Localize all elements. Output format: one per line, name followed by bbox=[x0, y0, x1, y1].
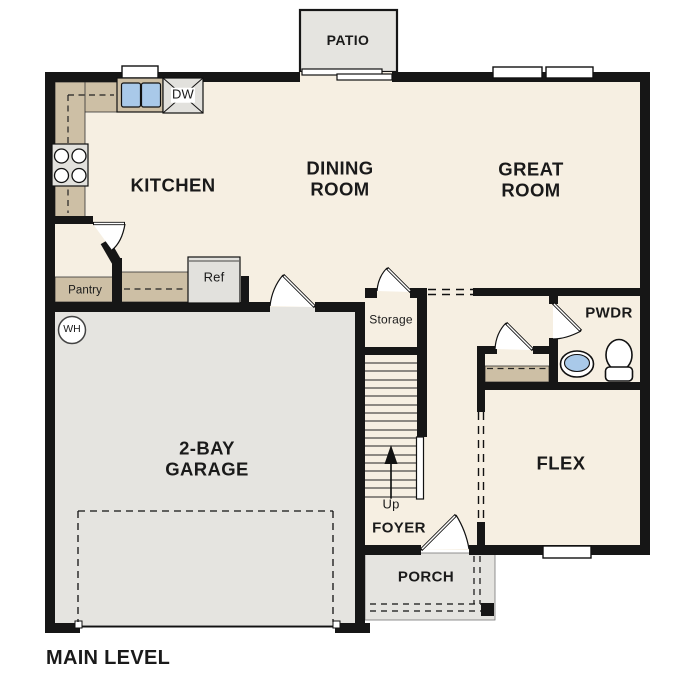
great-room-label: GREAT ROOM bbox=[498, 159, 563, 200]
dining-room-label: DINING ROOM bbox=[306, 158, 373, 199]
kitchen-window bbox=[122, 66, 158, 78]
kitchen-label: KITCHEN bbox=[130, 176, 215, 197]
porch-post bbox=[481, 603, 494, 616]
powder-sink bbox=[561, 351, 594, 377]
refrigerator-label: Ref bbox=[203, 271, 226, 286]
great-room-window-2 bbox=[546, 67, 593, 78]
garage-label: 2-BAY GARAGE bbox=[165, 438, 249, 479]
patio-label: PATIO bbox=[327, 33, 370, 49]
pantry-label: Pantry bbox=[68, 285, 102, 298]
porch-slab bbox=[365, 553, 495, 620]
flex-label: FLEX bbox=[537, 454, 586, 475]
toilet bbox=[606, 340, 633, 382]
storage-label: Storage bbox=[369, 313, 412, 326]
water-heater-label: WH bbox=[63, 324, 81, 336]
up-label: Up bbox=[382, 498, 399, 513]
dishwasher-label: DW bbox=[171, 88, 195, 103]
patio-sliding-door bbox=[300, 69, 392, 82]
powder-label: PWDR bbox=[585, 306, 632, 323]
mudroom-counter bbox=[120, 272, 188, 302]
closet-shelf bbox=[485, 366, 549, 382]
range-stove bbox=[52, 144, 88, 186]
flex-window bbox=[543, 546, 591, 558]
floor-plan-drawing bbox=[0, 0, 687, 687]
stair-handrail bbox=[417, 437, 424, 499]
porch-label: PORCH bbox=[398, 570, 454, 587]
main-level-title: MAIN LEVEL bbox=[46, 647, 170, 669]
foyer-label: FOYER bbox=[372, 521, 426, 538]
floor-plan-page: PATIO KITCHEN DINING ROOM GREAT ROOM 2-B… bbox=[0, 0, 687, 687]
great-room-window-1 bbox=[493, 67, 542, 78]
kitchen-sink bbox=[117, 78, 163, 112]
